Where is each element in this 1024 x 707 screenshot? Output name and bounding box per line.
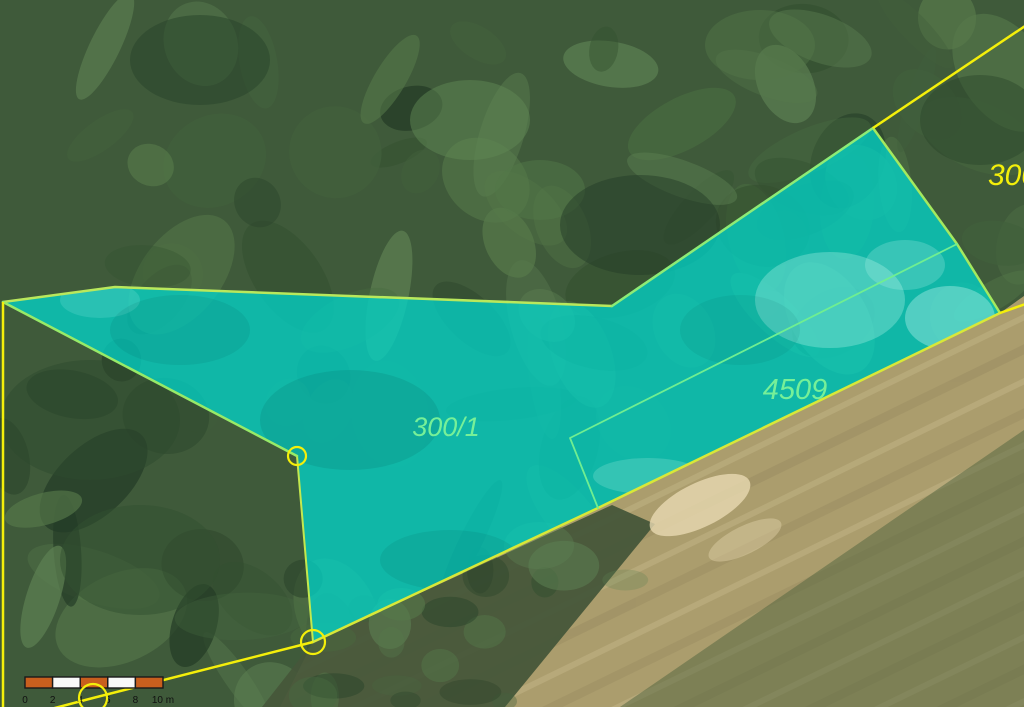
scale-bar-label: 0 [22, 695, 28, 706]
scale-bar-label: 10 m [152, 695, 174, 706]
parcel-label-300-1: 300/1 [412, 412, 480, 442]
scale-bar-label: 2 [50, 695, 56, 706]
map-viewport[interactable]: 300/145093000246810 m [0, 0, 1024, 707]
scale-bar-segment [108, 677, 136, 688]
map-canvas[interactable]: 300/145093000246810 m [0, 0, 1024, 707]
scale-bar-segment [135, 677, 163, 688]
scale-bar-segment [25, 677, 53, 688]
parcel-label-4509: 4509 [763, 374, 828, 406]
scale-bar-label: 8 [133, 695, 139, 706]
scale-bar-segment [53, 677, 81, 688]
adjacent-parcel-label: 300 [988, 159, 1024, 192]
